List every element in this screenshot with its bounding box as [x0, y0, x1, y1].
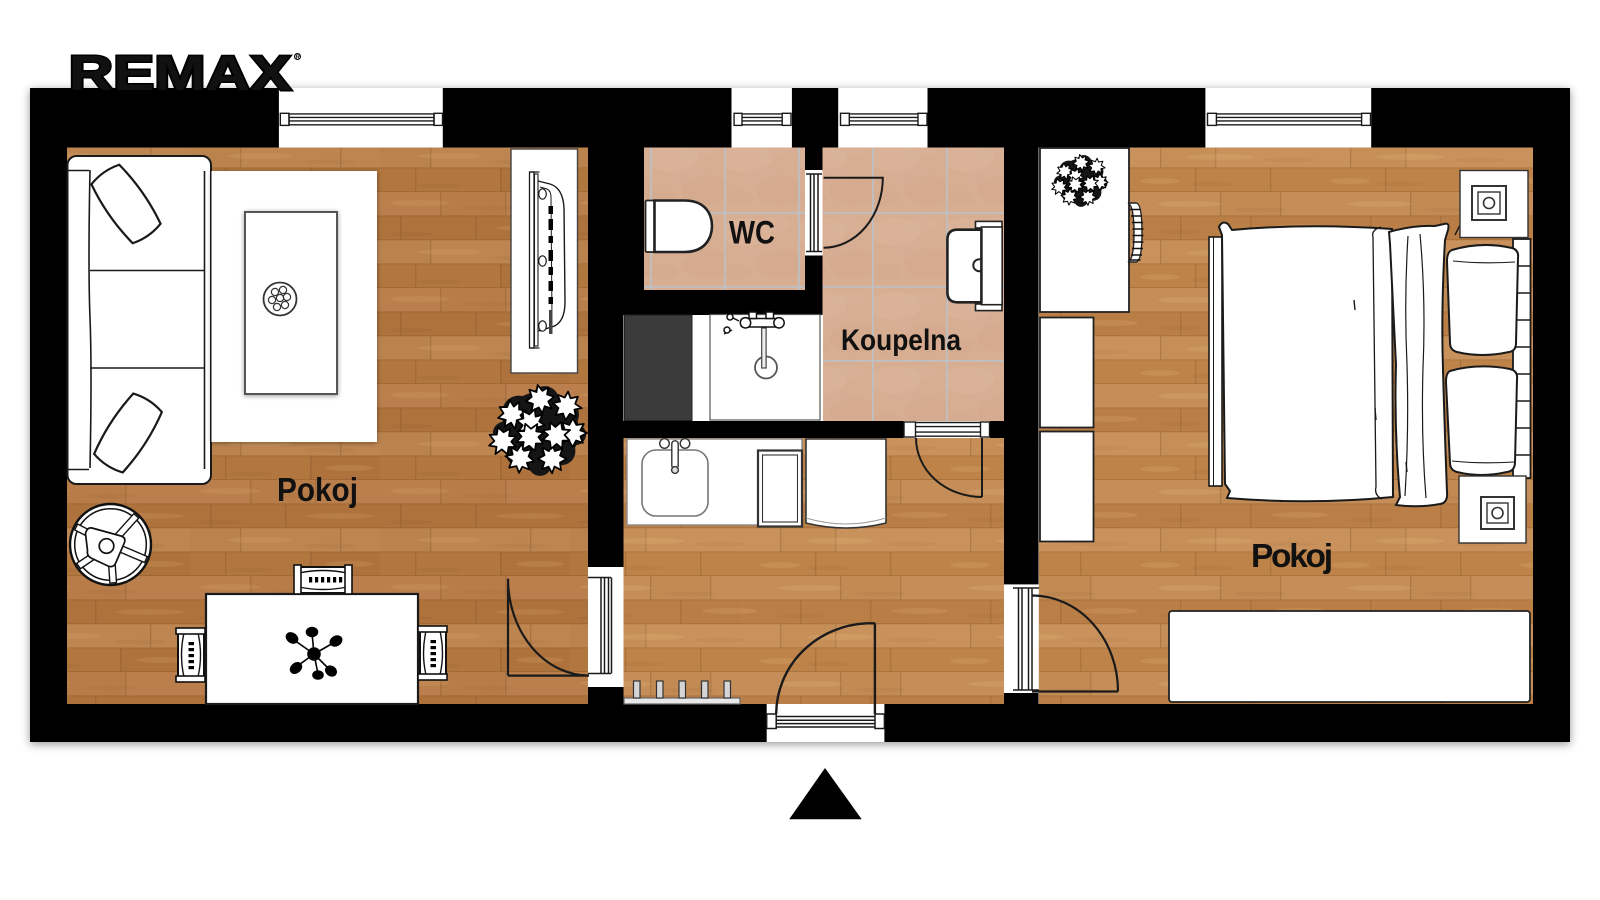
svg-text:WC: WC [729, 215, 775, 251]
svg-text:Koupelna: Koupelna [841, 324, 961, 357]
svg-text:R: R [295, 54, 300, 61]
svg-text:Pokoj: Pokoj [1251, 538, 1333, 575]
svg-text:Pokoj: Pokoj [277, 472, 358, 509]
svg-text:REMAX: REMAX [69, 45, 292, 100]
